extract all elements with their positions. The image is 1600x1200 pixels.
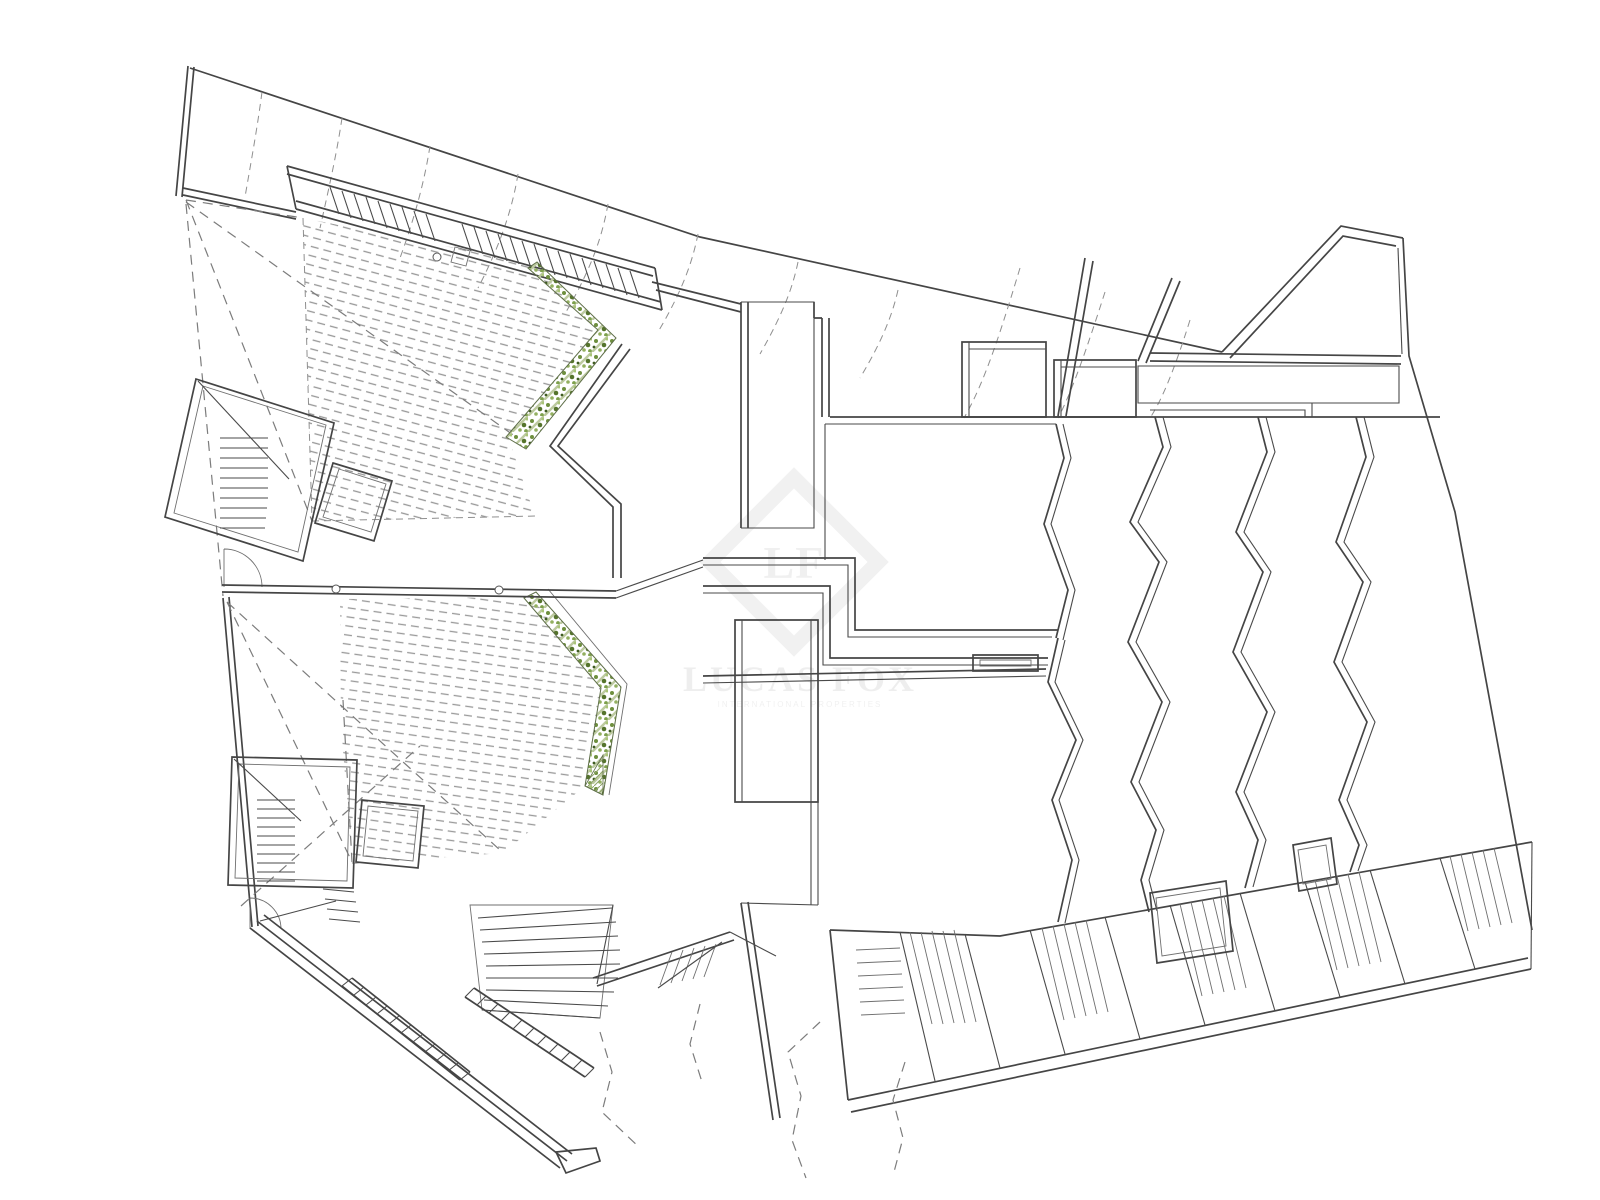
band-partition	[1105, 917, 1140, 1039]
slope-zigzag-1	[1048, 638, 1076, 922]
page: { "meta": {"width": 1600, "height": 1200…	[0, 0, 1600, 1200]
amphitheater-outline	[470, 905, 613, 1018]
band-partition	[1170, 905, 1205, 1025]
slope-zigzag-3b	[1241, 417, 1275, 887]
plan-shapes	[165, 66, 1532, 1178]
slope-zigzag-4	[1334, 417, 1367, 872]
door-swing-upper	[224, 549, 262, 587]
boundary-right	[1403, 238, 1532, 930]
building-a-step-wall	[814, 302, 829, 417]
small-steps	[323, 889, 360, 922]
corridor-line	[703, 565, 1052, 637]
building-b-inner-walls	[742, 620, 811, 802]
band-partition	[1440, 858, 1475, 969]
slope-zigzag-2	[1128, 417, 1163, 912]
building-b-lower-walls	[741, 802, 818, 905]
band-stairs	[910, 930, 976, 1024]
stair-block-1-treads	[220, 438, 268, 528]
band-stairs	[1180, 896, 1246, 996]
band-partition	[900, 932, 935, 1081]
bottom-contour-dash	[893, 1062, 905, 1172]
plaza-top-edge	[260, 901, 336, 921]
boundary-peak	[1222, 226, 1403, 358]
terrain-contour-dash	[245, 92, 262, 197]
terrain-contour-dash	[860, 290, 898, 378]
amphitheater-steps	[478, 908, 620, 1018]
mid-wall-connector	[616, 560, 703, 598]
terrain-contour-dash	[964, 268, 1020, 418]
band-stairs-left	[856, 948, 905, 1015]
stair-to-building-link	[652, 282, 741, 312]
terrain-contour-dash	[658, 234, 698, 332]
stair-block-2-diagonal	[234, 759, 301, 821]
court-zigzag-wall	[1044, 424, 1068, 638]
top-room-3	[1138, 366, 1399, 403]
plan-svg	[0, 0, 1600, 1200]
mid-dividing-wall	[222, 585, 616, 598]
corridor-line	[703, 669, 1046, 676]
small-stair-band	[660, 944, 716, 985]
wall-post	[495, 586, 503, 594]
path-down	[741, 902, 780, 1120]
top-room-1	[962, 342, 1046, 417]
band-partition	[1305, 882, 1340, 997]
band-partition	[965, 934, 1000, 1068]
peak-inner-edge	[1398, 248, 1402, 354]
wall-end-cap	[556, 1148, 600, 1173]
band-partition	[1370, 870, 1405, 984]
terrace-band-bottom	[848, 958, 1531, 1112]
walkway-band-upper	[1150, 353, 1401, 364]
boundary-left-edge	[176, 66, 194, 197]
top-room-2-inner	[1061, 360, 1136, 417]
building-b-outline	[735, 620, 818, 802]
site-plan: LF LUCAS FOX INTERNATIONAL PROPERTIES	[0, 0, 1600, 1200]
bottom-contour-dash	[690, 1004, 702, 1082]
building-a-outline	[741, 302, 814, 528]
corridor-line	[703, 676, 1046, 683]
ramp-wall-2	[1138, 278, 1180, 363]
ramp-wall-1	[1058, 258, 1093, 416]
upper-terrace-hatch	[303, 218, 598, 521]
band-partition	[1030, 930, 1065, 1054]
wall-post	[332, 585, 340, 593]
bottom-contour-dash	[600, 1032, 640, 1148]
terrace-band-left	[830, 930, 848, 1100]
stair-block-1-diagonal	[198, 381, 289, 479]
band-partition	[1240, 893, 1275, 1011]
stair-block-2-treads	[257, 800, 295, 881]
top-room-1-inner	[969, 342, 1046, 417]
stair-run-a-treads	[342, 978, 470, 1080]
corridor-line	[703, 586, 1048, 658]
stair-run-b-treads	[465, 988, 594, 1077]
terrain-contour-dash	[760, 262, 798, 354]
bottom-contour-dash	[788, 1022, 820, 1178]
band-stairs	[1042, 920, 1108, 1020]
terrace-band-top	[830, 842, 1532, 936]
terrace-band-right	[1531, 842, 1532, 969]
wall-link	[597, 905, 776, 984]
walkway-band-lower	[1150, 403, 1312, 417]
slope-zigzag-3	[1233, 417, 1267, 888]
building-a-left-wall	[741, 302, 748, 528]
terrain-contour-dash	[1058, 292, 1105, 418]
slope-zigzag-4b	[1342, 417, 1375, 871]
